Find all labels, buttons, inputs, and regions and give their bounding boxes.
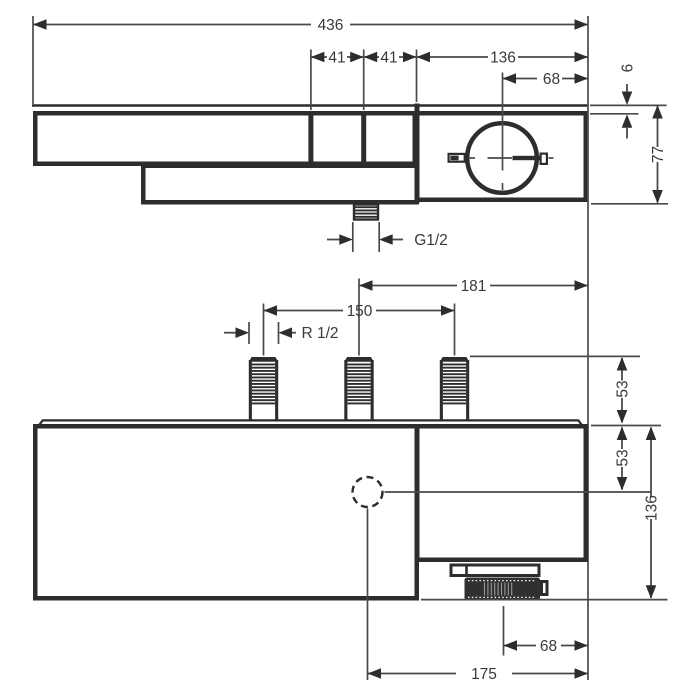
- svg-text:68: 68: [543, 71, 560, 88]
- svg-text:181: 181: [461, 278, 487, 295]
- svg-text:R 1/2: R 1/2: [301, 325, 338, 342]
- svg-text:136: 136: [490, 50, 516, 67]
- svg-text:G1/2: G1/2: [414, 232, 448, 249]
- svg-text:6: 6: [620, 64, 637, 73]
- svg-text:53: 53: [615, 449, 632, 466]
- svg-text:136: 136: [644, 495, 661, 521]
- svg-text:175: 175: [471, 666, 497, 683]
- svg-text:150: 150: [347, 303, 373, 320]
- svg-text:68: 68: [540, 638, 557, 655]
- svg-text:436: 436: [318, 17, 344, 34]
- svg-text:53: 53: [615, 380, 632, 397]
- svg-text:41: 41: [380, 50, 397, 67]
- svg-text:77: 77: [650, 146, 667, 163]
- svg-text:41: 41: [328, 50, 345, 67]
